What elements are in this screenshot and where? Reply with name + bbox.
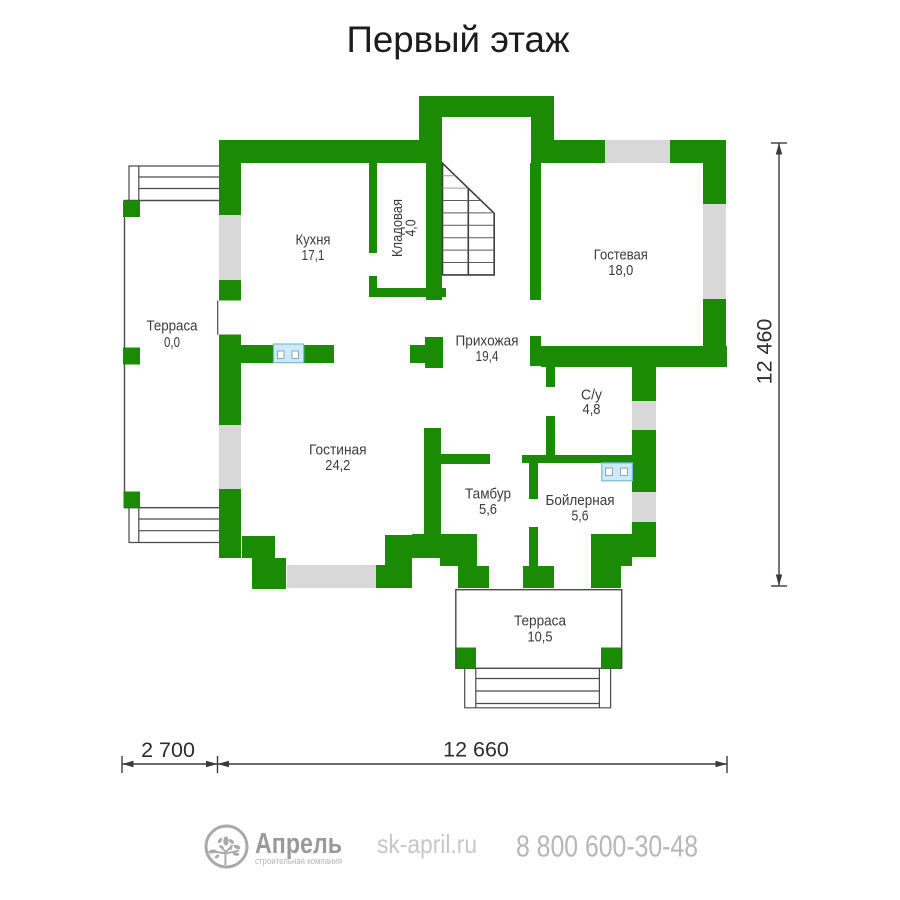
svg-text:строительная компания: строительная компания — [255, 856, 342, 866]
svg-text:5,6: 5,6 — [572, 509, 589, 525]
svg-text:12 460: 12 460 — [753, 319, 777, 385]
svg-text:Терраса: Терраса — [147, 319, 199, 335]
svg-text:24,2: 24,2 — [325, 458, 350, 474]
svg-text:Кухня: Кухня — [296, 233, 331, 249]
svg-text:4,0: 4,0 — [404, 220, 420, 237]
svg-text:Бойлерная: Бойлерная — [546, 493, 615, 509]
svg-text:4,8: 4,8 — [583, 402, 601, 418]
svg-text:Прихожая: Прихожая — [456, 334, 519, 350]
svg-text:Гостиная: Гостиная — [309, 443, 367, 459]
svg-text:17,1: 17,1 — [302, 248, 325, 264]
svg-text:Гостевая: Гостевая — [594, 248, 648, 264]
svg-text:Первый этаж: Первый этаж — [347, 18, 570, 60]
svg-text:Терраса: Терраса — [514, 614, 567, 630]
svg-text:12 660: 12 660 — [443, 738, 509, 762]
svg-text:Тамбур: Тамбур — [465, 487, 511, 503]
svg-text:5,6: 5,6 — [479, 502, 497, 518]
svg-text:0,0: 0,0 — [164, 335, 180, 351]
svg-text:18,0: 18,0 — [608, 263, 633, 279]
svg-text:8 800 600-30-48: 8 800 600-30-48 — [516, 829, 698, 864]
svg-text:10,5: 10,5 — [528, 630, 553, 646]
svg-text:2 700: 2 700 — [141, 738, 195, 762]
svg-text:sk-april.ru: sk-april.ru — [377, 829, 477, 859]
svg-text:19,4: 19,4 — [476, 349, 499, 365]
